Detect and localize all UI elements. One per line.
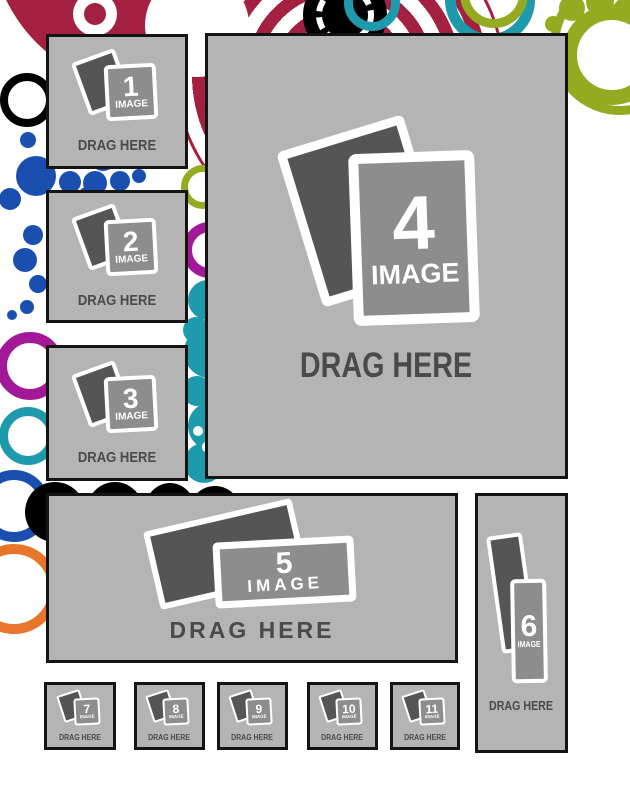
photo-placeholder: 11 IMAGE DRAG HERE (401, 690, 449, 742)
drag-here-label: DRAG HERE (490, 698, 554, 713)
photo-stack-icon: 6 IMAGE (494, 534, 548, 684)
image-slot-11[interactable]: 11 IMAGE DRAG HERE (390, 682, 460, 750)
image-label: IMAGE (370, 259, 459, 289)
image-label: IMAGE (252, 714, 267, 719)
photo-stack-icon: 11 IMAGE (404, 690, 446, 730)
drag-here-label: DRAG HERE (322, 733, 364, 742)
image-slot-5[interactable]: 5 IMAGE DRAG HERE (46, 493, 458, 663)
image-slot-2[interactable]: 2 IMAGE DRAG HERE (46, 190, 188, 323)
drag-here-label: DRAG HERE (300, 346, 472, 386)
photo-front-icon: 4 IMAGE (348, 150, 480, 326)
drag-here-label: DRAG HERE (149, 733, 191, 742)
image-label: IMAGE (115, 410, 148, 422)
decor-blue-dot (20, 300, 34, 314)
drag-here-label: DRAG HERE (78, 292, 156, 309)
image-label: IMAGE (246, 574, 323, 595)
photo-stack-icon: 2 IMAGE (77, 204, 157, 288)
image-slot-7[interactable]: 7 IMAGE DRAG HERE (44, 682, 116, 750)
photo-front-icon: 8 IMAGE (163, 697, 190, 725)
decor-blue-dot (23, 225, 43, 245)
photo-stack-icon: 8 IMAGE (148, 690, 190, 730)
image-label: IMAGE (115, 254, 148, 266)
drag-here-label: DRAG HERE (232, 733, 274, 742)
collage-page: 1 IMAGE DRAG HERE 2 IMAGE DRAG HERE (0, 0, 630, 810)
decor-blue-dot (0, 188, 21, 210)
decor-olive-dot (545, 16, 561, 32)
slot-number: 4 (391, 188, 436, 262)
photo-placeholder: 9 IMAGE DRAG HERE (228, 690, 276, 742)
image-label: IMAGE (80, 714, 95, 719)
photo-stack-icon: 10 IMAGE (321, 690, 363, 730)
slot-number: 6 (521, 613, 538, 640)
drag-here-label: DRAG HERE (169, 617, 334, 644)
decor-blue-dot (132, 169, 146, 183)
drag-here-label: DRAG HERE (78, 137, 156, 154)
photo-front-icon: 10 IMAGE (336, 697, 363, 725)
photo-front-icon: 7 IMAGE (73, 697, 100, 725)
image-label: IMAGE (342, 714, 357, 719)
image-slot-6[interactable]: 6 IMAGE DRAG HERE (475, 493, 568, 753)
decor-blue-dot (110, 171, 130, 191)
photo-front-icon: 9 IMAGE (246, 697, 273, 725)
photo-placeholder: 7 IMAGE DRAG HERE (56, 690, 104, 742)
image-label: IMAGE (169, 714, 184, 719)
decor-crimson-dot (84, 3, 106, 25)
image-label: IMAGE (425, 714, 440, 719)
photo-front-icon: 1 IMAGE (104, 63, 159, 122)
photo-placeholder: 5 IMAGE DRAG HERE (150, 512, 355, 644)
photo-placeholder: 1 IMAGE DRAG HERE (72, 49, 162, 154)
photo-stack-icon: 3 IMAGE (77, 361, 157, 445)
decor-blue-dot (20, 132, 36, 148)
image-slot-3[interactable]: 3 IMAGE DRAG HERE (46, 345, 188, 481)
decor-white-mini-dot (193, 426, 203, 436)
decor-blue-dot (7, 310, 17, 320)
slot-number: 2 (122, 229, 139, 255)
photo-placeholder: 10 IMAGE DRAG HERE (318, 690, 366, 742)
image-slot-10[interactable]: 10 IMAGE DRAG HERE (307, 682, 378, 750)
drag-here-label: DRAG HERE (59, 733, 101, 742)
slot-number: 5 (275, 550, 293, 576)
photo-placeholder: 6 IMAGE DRAG HERE (482, 534, 560, 713)
decor-blue-dot (29, 275, 47, 293)
slot-number: 3 (122, 386, 139, 412)
slot-number: 1 (122, 74, 139, 100)
photo-front-icon: 11 IMAGE (418, 697, 445, 725)
photo-front-icon: 2 IMAGE (104, 218, 159, 277)
decor-blue-dot (13, 248, 37, 272)
image-slot-9[interactable]: 9 IMAGE DRAG HERE (217, 682, 288, 750)
drag-here-label: DRAG HERE (404, 733, 446, 742)
image-label: IMAGE (518, 640, 541, 649)
image-label: IMAGE (115, 99, 148, 111)
photo-stack-icon: 9 IMAGE (231, 690, 273, 730)
photo-front-icon: 5 IMAGE (212, 535, 356, 608)
photo-placeholder: 3 IMAGE DRAG HERE (72, 361, 162, 466)
photo-placeholder: 2 IMAGE DRAG HERE (72, 204, 162, 309)
photo-placeholder: 8 IMAGE DRAG HERE (145, 690, 193, 742)
image-slot-1[interactable]: 1 IMAGE DRAG HERE (46, 34, 188, 169)
image-slot-4[interactable]: 4 IMAGE DRAG HERE (205, 33, 568, 479)
photo-stack-icon: 1 IMAGE (77, 49, 157, 133)
photo-front-icon: 6 IMAGE (511, 578, 549, 683)
image-slot-8[interactable]: 8 IMAGE DRAG HERE (134, 682, 205, 750)
photo-front-icon: 3 IMAGE (104, 374, 159, 433)
photo-placeholder: 4 IMAGE DRAG HERE (281, 126, 491, 386)
photo-stack-icon: 5 IMAGE (150, 512, 355, 608)
photo-stack-icon: 4 IMAGE (297, 126, 477, 328)
photo-stack-icon: 7 IMAGE (59, 690, 101, 730)
drag-here-label: DRAG HERE (78, 449, 156, 466)
